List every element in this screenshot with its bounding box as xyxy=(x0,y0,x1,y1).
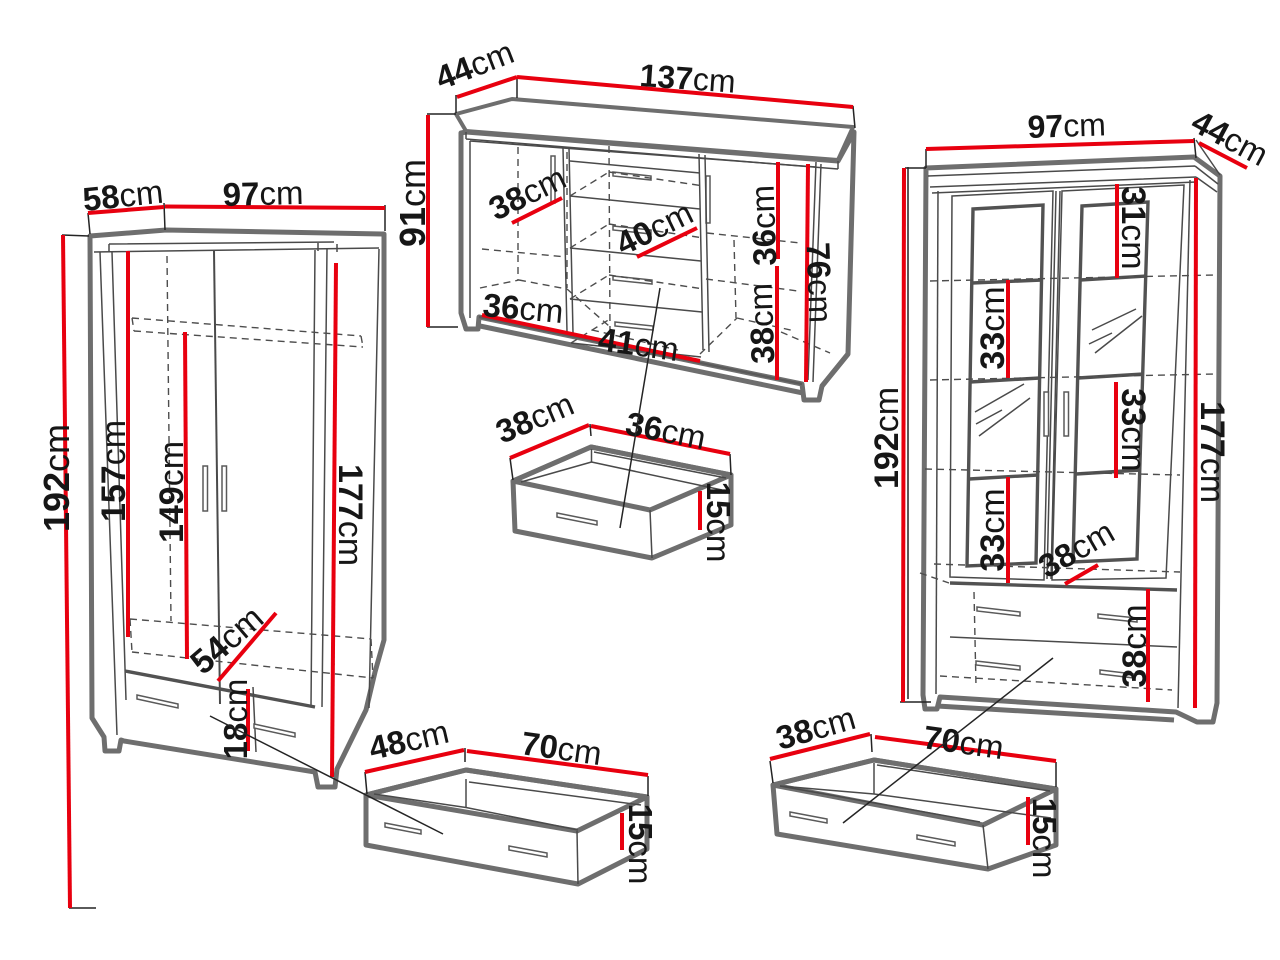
svg-text:15cm: 15cm xyxy=(700,482,737,563)
svg-text:137cm: 137cm xyxy=(639,57,737,100)
svg-text:97cm: 97cm xyxy=(222,174,304,213)
svg-text:31cm: 31cm xyxy=(1114,186,1152,269)
svg-text:18cm: 18cm xyxy=(217,679,254,760)
svg-text:33cm: 33cm xyxy=(974,488,1012,571)
svg-text:149cm: 149cm xyxy=(153,441,191,543)
svg-text:177cm: 177cm xyxy=(1193,401,1231,503)
svg-text:76cm: 76cm xyxy=(800,242,840,324)
svg-text:192cm: 192cm xyxy=(36,424,77,532)
svg-text:36cm: 36cm xyxy=(481,286,565,330)
svg-text:36cm: 36cm xyxy=(744,184,784,266)
svg-text:192cm: 192cm xyxy=(868,387,906,489)
svg-text:15cm: 15cm xyxy=(1026,798,1063,879)
svg-text:15cm: 15cm xyxy=(622,804,659,885)
svg-text:33cm: 33cm xyxy=(974,286,1012,369)
svg-text:38cm: 38cm xyxy=(742,282,782,364)
svg-text:157cm: 157cm xyxy=(95,420,133,522)
svg-text:33cm: 33cm xyxy=(1114,388,1152,471)
svg-text:97cm: 97cm xyxy=(1027,106,1106,145)
svg-text:38cm: 38cm xyxy=(1116,604,1154,687)
svg-text:91cm: 91cm xyxy=(392,159,433,247)
svg-text:177cm: 177cm xyxy=(331,464,369,566)
